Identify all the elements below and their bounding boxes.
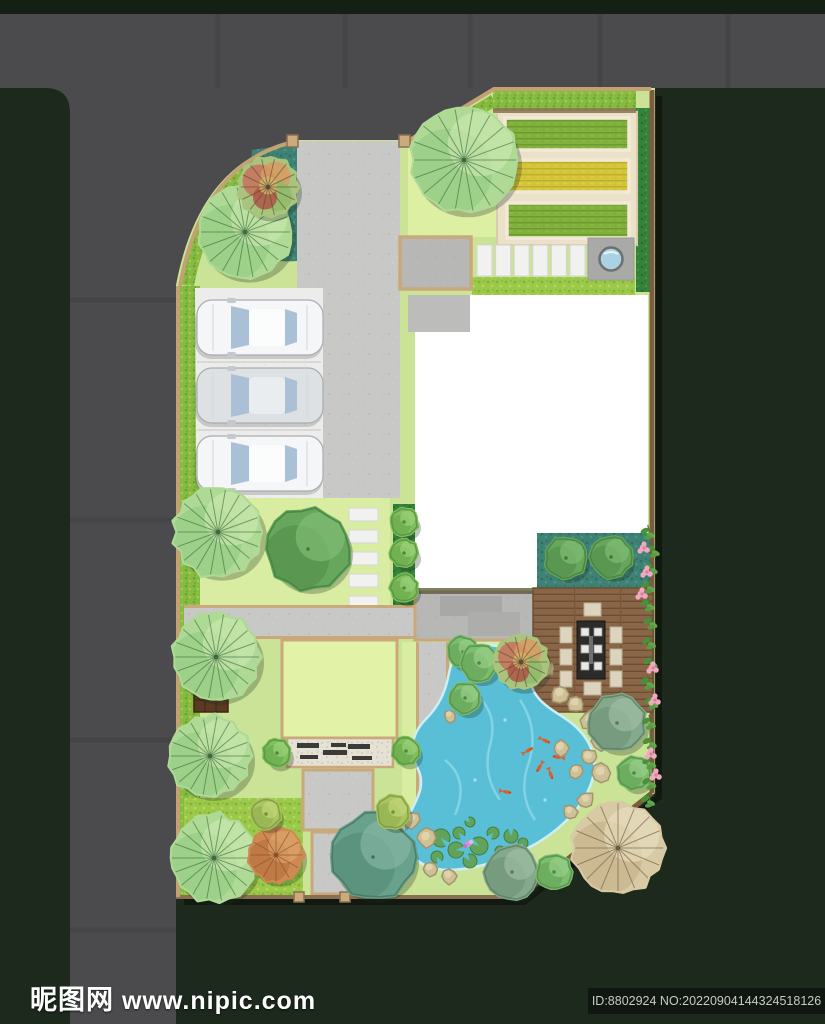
terrace (415, 592, 538, 640)
stepping-paver (349, 574, 378, 587)
lily-flower (469, 840, 473, 844)
pad-two (408, 295, 470, 332)
watermark-site-name: 昵图网 (30, 985, 114, 1015)
lily-flower (463, 844, 467, 848)
stepping-paver (533, 245, 548, 276)
stepping-paver (496, 245, 511, 276)
lawn-strip-walkway (402, 642, 416, 808)
parked-car (195, 366, 323, 427)
right-deep-hedge-column (636, 108, 650, 292)
vegetable-bed-green (505, 118, 629, 150)
stock-photo-landscape-plan: 昵图网www.nipic.com ID:8802924 NO:202209041… (0, 0, 825, 1024)
bordered-pad (400, 237, 471, 289)
gravel-plank (331, 743, 346, 747)
driveway-apron (323, 288, 400, 498)
vegetable-bed-yellow (505, 160, 629, 192)
gravel-plank (300, 755, 318, 759)
vegetable-bed-green (507, 203, 629, 238)
boulder (445, 711, 456, 723)
parked-car (195, 298, 323, 359)
top-strip (0, 0, 825, 14)
gravel-plank (352, 756, 372, 760)
gate-post (399, 135, 410, 147)
gate-post (294, 892, 304, 902)
stepping-paver (349, 508, 378, 521)
parked-car (195, 434, 323, 495)
watermark-logo: 昵图网www.nipic.com (30, 978, 316, 1017)
gate-post (287, 135, 298, 147)
gravel-plank (348, 744, 370, 749)
gate-post (340, 892, 350, 902)
stepping-paver (349, 530, 378, 543)
image-id-bar: ID:8802924 NO:20220904144324518126 (588, 988, 825, 1014)
stepping-paver (514, 245, 529, 276)
gravel-plank (297, 743, 319, 748)
boulder (568, 697, 583, 711)
water-basin (600, 248, 623, 271)
boulder (552, 686, 569, 703)
boulder (582, 750, 597, 764)
water-basin-pad (588, 238, 634, 280)
stepping-paver (477, 245, 492, 276)
gravel-plank (323, 750, 347, 755)
stepping-paver (349, 552, 378, 565)
watermark-site-url: www.nipic.com (122, 987, 316, 1015)
site-plan-rendering (0, 0, 825, 1024)
stepping-paver (551, 245, 566, 276)
top-hedge-strip (493, 88, 636, 111)
court-lawn (282, 640, 397, 767)
driveway-corridor (297, 141, 400, 289)
stepping-paver (570, 245, 585, 276)
